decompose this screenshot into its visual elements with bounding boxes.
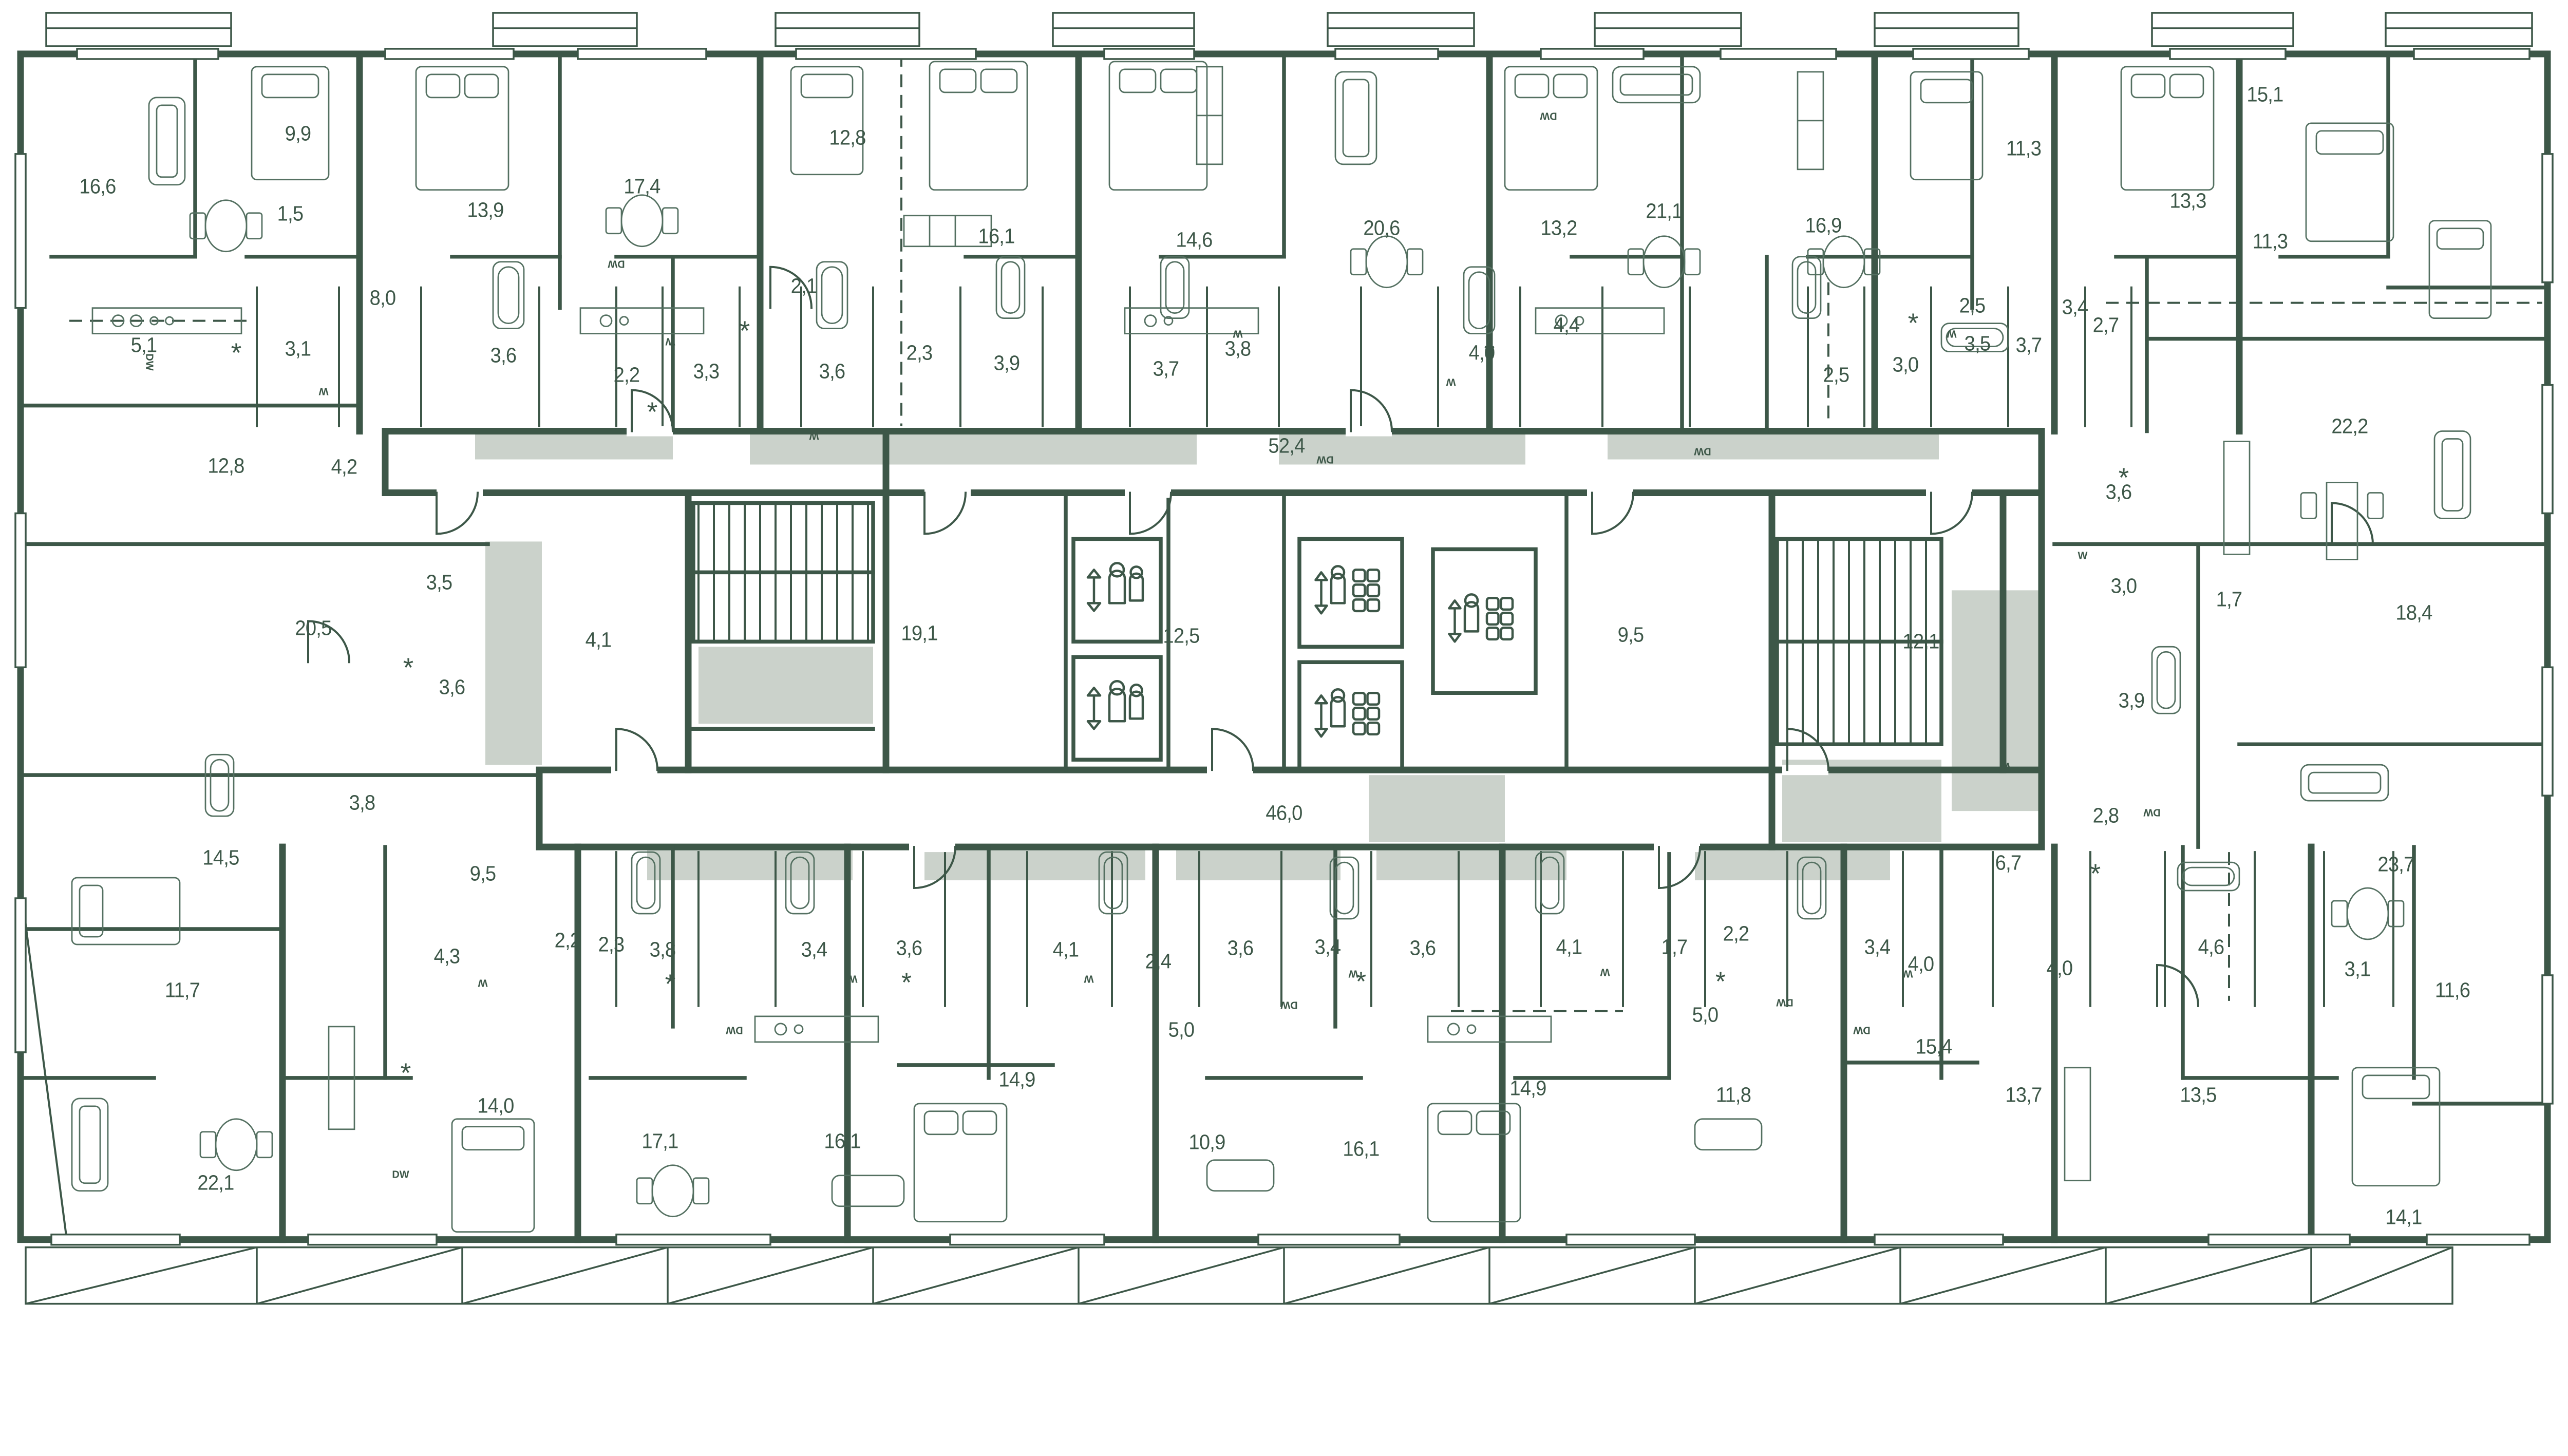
room-area-label: 1,5 [277,203,304,224]
appliance-label: DW [726,1024,743,1035]
room-area-label: 3,9 [2119,690,2145,711]
room-area-label: 12,8 [207,455,244,476]
room-area-label: 16,1 [1343,1138,1379,1159]
room-area-label: 10,9 [1188,1132,1225,1153]
room-area-label: 16,1 [978,225,1014,247]
room-area-label: 22,1 [197,1173,234,1194]
room-area-label: 14,6 [1176,230,1212,251]
room-area-label: 16,1 [824,1130,860,1151]
appliance-label: W [848,972,858,984]
room-area-label: 3,9 [994,353,1020,374]
room-area-label: 2,5 [1823,365,1849,386]
room-area-label: 3,0 [1893,354,1919,375]
room-area-label: 3,4 [2062,296,2088,317]
room-area-label: 14,9 [998,1069,1035,1090]
hob-symbol: * [1715,968,1726,995]
room-area-label: 4,1 [1053,939,1079,960]
appliance-label: DW [1540,109,1557,121]
appliance-label: W [1947,327,1957,339]
room-area-label: 46,0 [1266,803,1302,824]
appliance-label: W [666,335,675,347]
room-area-label: 9,5 [470,863,496,884]
appliance-label: W [1446,376,1456,388]
appliance-label: W [1600,966,1610,978]
room-area-label: 4,3 [434,946,460,967]
room-area-label: 3,4 [1315,936,1341,957]
room-area-label: 2,2 [555,930,581,951]
hob-symbol: * [1908,310,1918,337]
room-area-label: 1,7 [1661,936,1688,957]
room-area-label: 9,5 [1618,624,1644,645]
appliance-label: W [809,429,819,441]
appliance-label: DW [392,1169,409,1181]
room-area-label: 11,8 [1716,1085,1751,1106]
appliance-label: W [2001,760,2011,772]
appliance-label: W [478,976,488,988]
room-area-label: 12,1 [1902,631,1939,652]
room-area-label: 3,1 [2345,959,2371,980]
appliance-label: DW [608,258,625,270]
hob-symbol: * [647,399,657,426]
room-area-label: 13,7 [2005,1085,2042,1106]
room-area-label: 3,6 [490,345,517,366]
room-area-label: 2,3 [598,934,625,955]
room-area-label: 2,7 [2093,315,2119,336]
room-area-label: 20,6 [1363,218,1400,239]
room-area-label: 3,4 [1864,936,1891,957]
room-area-label: 3,8 [1225,338,1251,360]
room-area-label: 20,5 [295,618,331,639]
room-area-label: 9,9 [285,123,311,144]
room-area-label: 3,8 [349,792,375,813]
room-area-label: 5,0 [1168,1019,1195,1040]
appliance-label: DW [1776,996,1793,1008]
floor-plan: 16,69,91,513,917,412,816,114,620,613,221… [0,0,2568,1312]
hob-symbol: * [401,1060,411,1087]
room-area-label: 3,1 [285,338,311,360]
room-area-label: 16,9 [1805,215,1841,236]
room-area-label: 12,8 [829,127,865,148]
room-area-label: 2,3 [907,342,933,363]
room-area-label: 5,0 [1692,1005,1719,1026]
hob-symbol: * [740,318,750,345]
room-area-label: 2,8 [2093,805,2119,826]
room-area-label: 19,1 [901,623,937,644]
appliance-label: DW [2143,806,2160,818]
room-area-label: 17,1 [641,1130,678,1151]
hob-symbol: * [1356,968,1366,995]
room-area-label: 3,5 [426,572,452,593]
hob-symbol: * [403,655,413,682]
room-area-label: 13,3 [2169,190,2206,211]
room-area-label: 3,6 [819,361,845,382]
appliance-label: W [1903,967,1913,979]
room-area-label: 12,5 [1163,626,1199,647]
room-area-label: 3,6 [439,677,465,698]
room-area-label: 2,5 [1959,295,1986,316]
room-area-label: 2,2 [1723,923,1749,944]
appliance-label: W [319,385,329,396]
room-area-label: 4,2 [331,457,357,478]
room-labels-layer: 16,69,91,513,917,412,816,114,620,613,221… [0,0,2568,1312]
room-area-label: 14,5 [202,847,239,868]
hob-symbol: * [2090,861,2101,888]
appliance-label: DW [143,353,155,370]
room-area-label: 13,5 [2180,1085,2216,1106]
room-area-label: 21,1 [1646,201,1682,222]
room-area-label: 11,6 [2435,979,2470,1000]
hob-symbol: * [2119,465,2129,492]
room-area-label: 2,4 [1145,951,1172,972]
hob-symbol: * [1484,340,1495,367]
room-area-label: 8,0 [370,287,396,308]
room-area-label: 17,4 [624,176,660,197]
room-area-label: 15,4 [1915,1036,1952,1057]
room-area-label: 3,6 [1410,938,1436,959]
room-area-label: 11,3 [2006,138,2041,159]
room-area-label: 4,0 [2047,957,2073,978]
appliance-label: DW [1280,999,1297,1011]
room-area-label: 3,0 [2111,576,2137,597]
room-area-label: 13,9 [467,199,503,220]
room-area-label: 4,4 [1554,315,1580,336]
room-area-label: 6,7 [1995,853,2022,874]
room-area-label: 3,7 [1153,358,1179,379]
room-area-label: 18,4 [2395,602,2432,623]
room-area-label: 14,9 [1509,1078,1546,1099]
room-area-label: 4,1 [1556,936,1582,957]
room-area-label: 3,4 [801,939,827,960]
room-area-label: 15,1 [2246,84,2283,105]
appliance-label: DW [1694,445,1711,457]
room-area-label: 11,3 [2253,231,2288,252]
room-area-label: 2,2 [614,365,640,386]
room-area-label: 23,7 [2377,854,2414,875]
room-area-label: 1,7 [2216,589,2242,610]
hob-symbol: * [901,970,912,997]
room-area-label: 2,1 [791,275,817,296]
appliance-label: W [1233,327,1243,339]
room-area-label: 3,7 [2016,334,2042,355]
room-area-label: 14,0 [477,1095,514,1116]
room-area-label: 14,1 [2385,1206,2422,1227]
room-area-label: 4,1 [586,630,612,651]
appliance-label: DW [1853,1024,1870,1035]
room-area-label: 16,6 [79,176,116,197]
room-area-label: 22,2 [2331,415,2368,437]
room-area-label: 3,8 [650,939,676,960]
room-area-label: 11,7 [165,979,200,1000]
hob-symbol: * [231,340,241,367]
appliance-label: W [2078,550,2088,562]
room-area-label: 13,2 [1540,218,1577,239]
room-area-label: 3,3 [693,361,720,382]
appliance-label: W [1084,972,1094,984]
room-area-label: 5,1 [131,334,157,355]
room-area-label: 3,5 [1965,333,1991,354]
room-area-label: 3,6 [896,938,922,959]
room-area-label: 4,6 [2198,936,2224,957]
room-area-label: 3,6 [1228,938,1254,959]
appliance-label: DW [1316,453,1333,465]
hob-symbol: * [665,971,675,998]
room-area-label: 52,4 [1268,436,1305,457]
